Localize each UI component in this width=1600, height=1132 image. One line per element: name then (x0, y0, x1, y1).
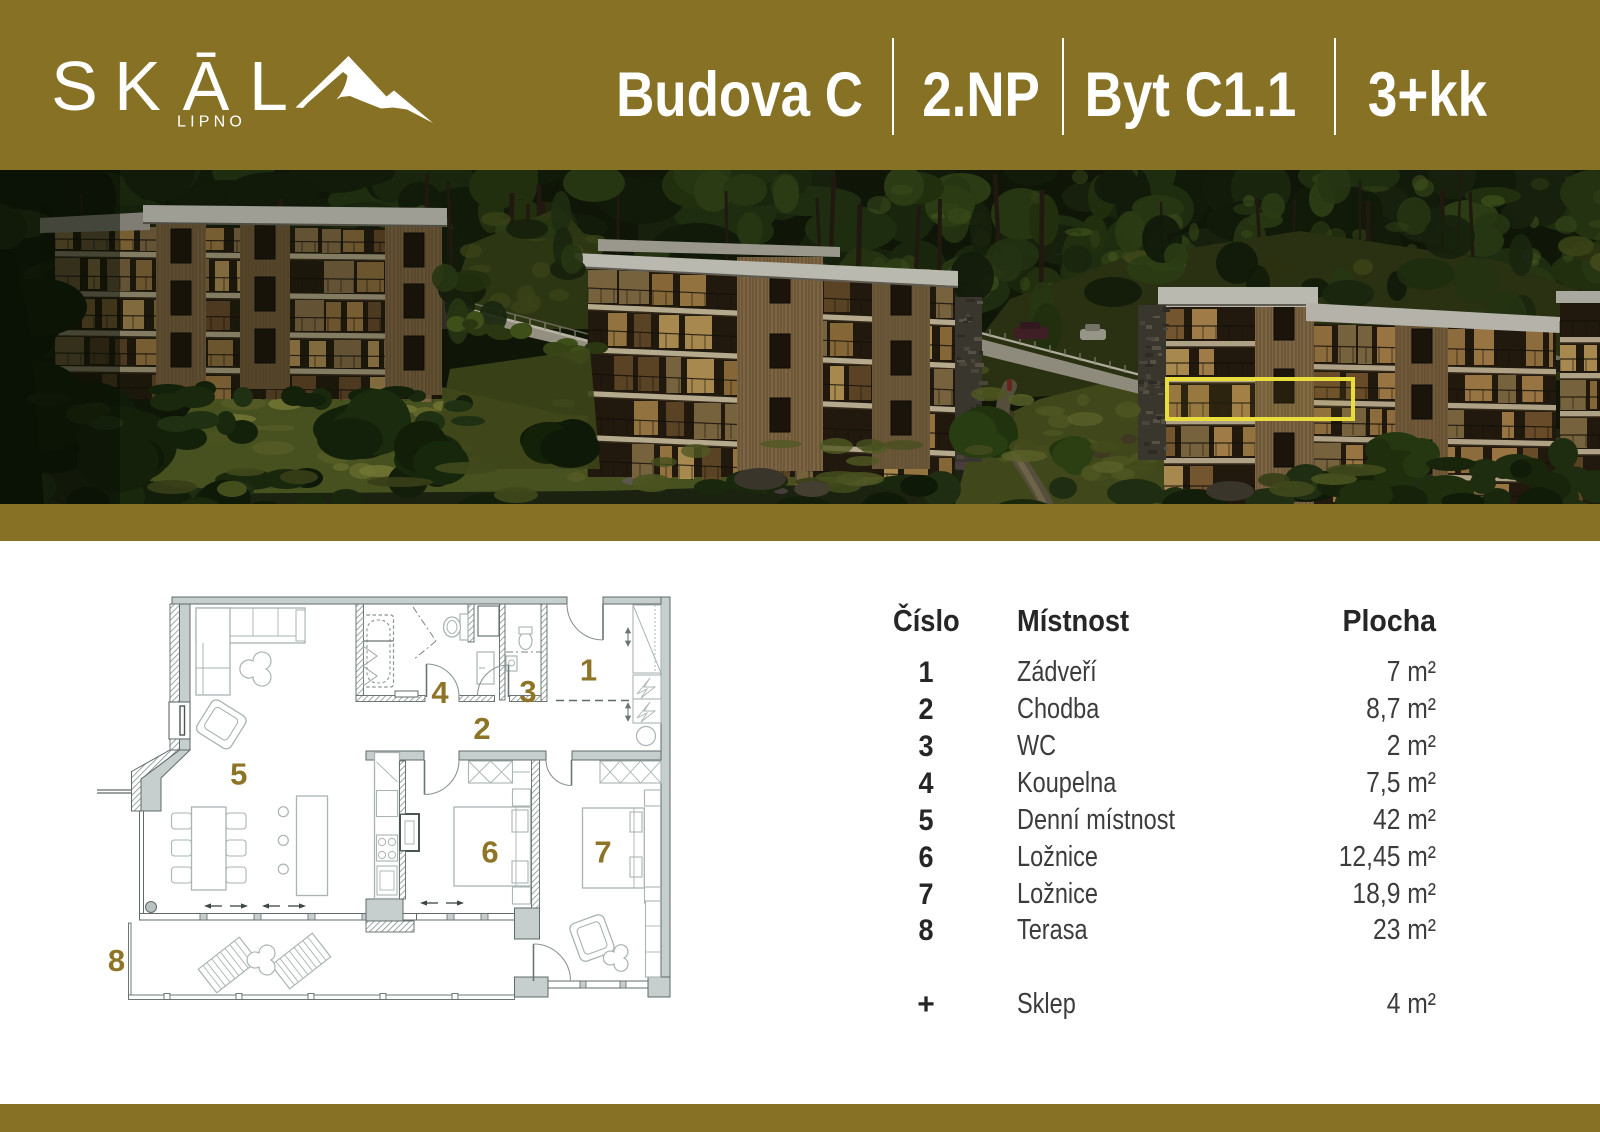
svg-text:K: K (114, 47, 161, 125)
svg-text:LIPNO: LIPNO (177, 114, 246, 131)
svg-text:4: 4 (431, 675, 449, 710)
svg-text:5: 5 (230, 757, 247, 792)
svg-text:3: 3 (519, 674, 536, 709)
svg-text:S: S (51, 47, 98, 125)
svg-text:Budova C: Budova C (616, 60, 863, 130)
svg-text:3+kk: 3+kk (1368, 60, 1488, 130)
svg-text:1: 1 (580, 653, 597, 688)
svg-text:L: L (249, 47, 288, 125)
svg-text:6: 6 (481, 835, 498, 870)
svg-text:Byt C1.1: Byt C1.1 (1085, 60, 1297, 130)
svg-text:2: 2 (473, 711, 490, 746)
svg-text:2.NP: 2.NP (922, 60, 1040, 130)
svg-text:7: 7 (594, 835, 611, 870)
svg-text:8: 8 (108, 943, 125, 978)
